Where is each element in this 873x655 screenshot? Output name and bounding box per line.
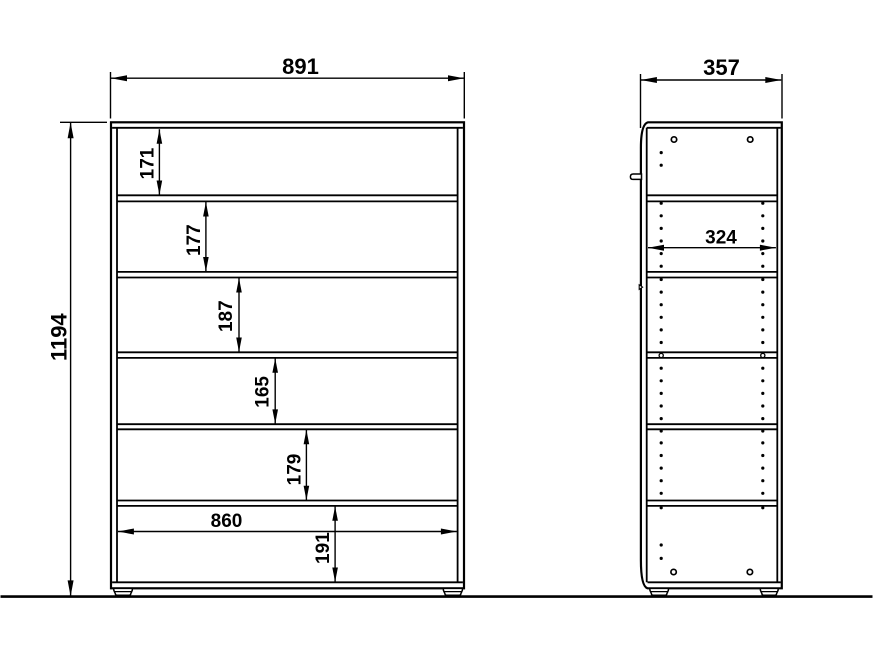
- svg-text:1194: 1194: [47, 313, 72, 361]
- svg-text:860: 860: [211, 511, 243, 532]
- svg-text:357: 357: [703, 55, 740, 80]
- svg-text:171: 171: [138, 147, 159, 179]
- svg-text:179: 179: [285, 454, 306, 486]
- svg-text:324: 324: [705, 227, 737, 248]
- svg-text:191: 191: [313, 532, 334, 564]
- svg-text:177: 177: [184, 224, 205, 256]
- svg-text:891: 891: [282, 54, 319, 79]
- svg-text:165: 165: [253, 376, 274, 408]
- svg-text:187: 187: [216, 300, 237, 332]
